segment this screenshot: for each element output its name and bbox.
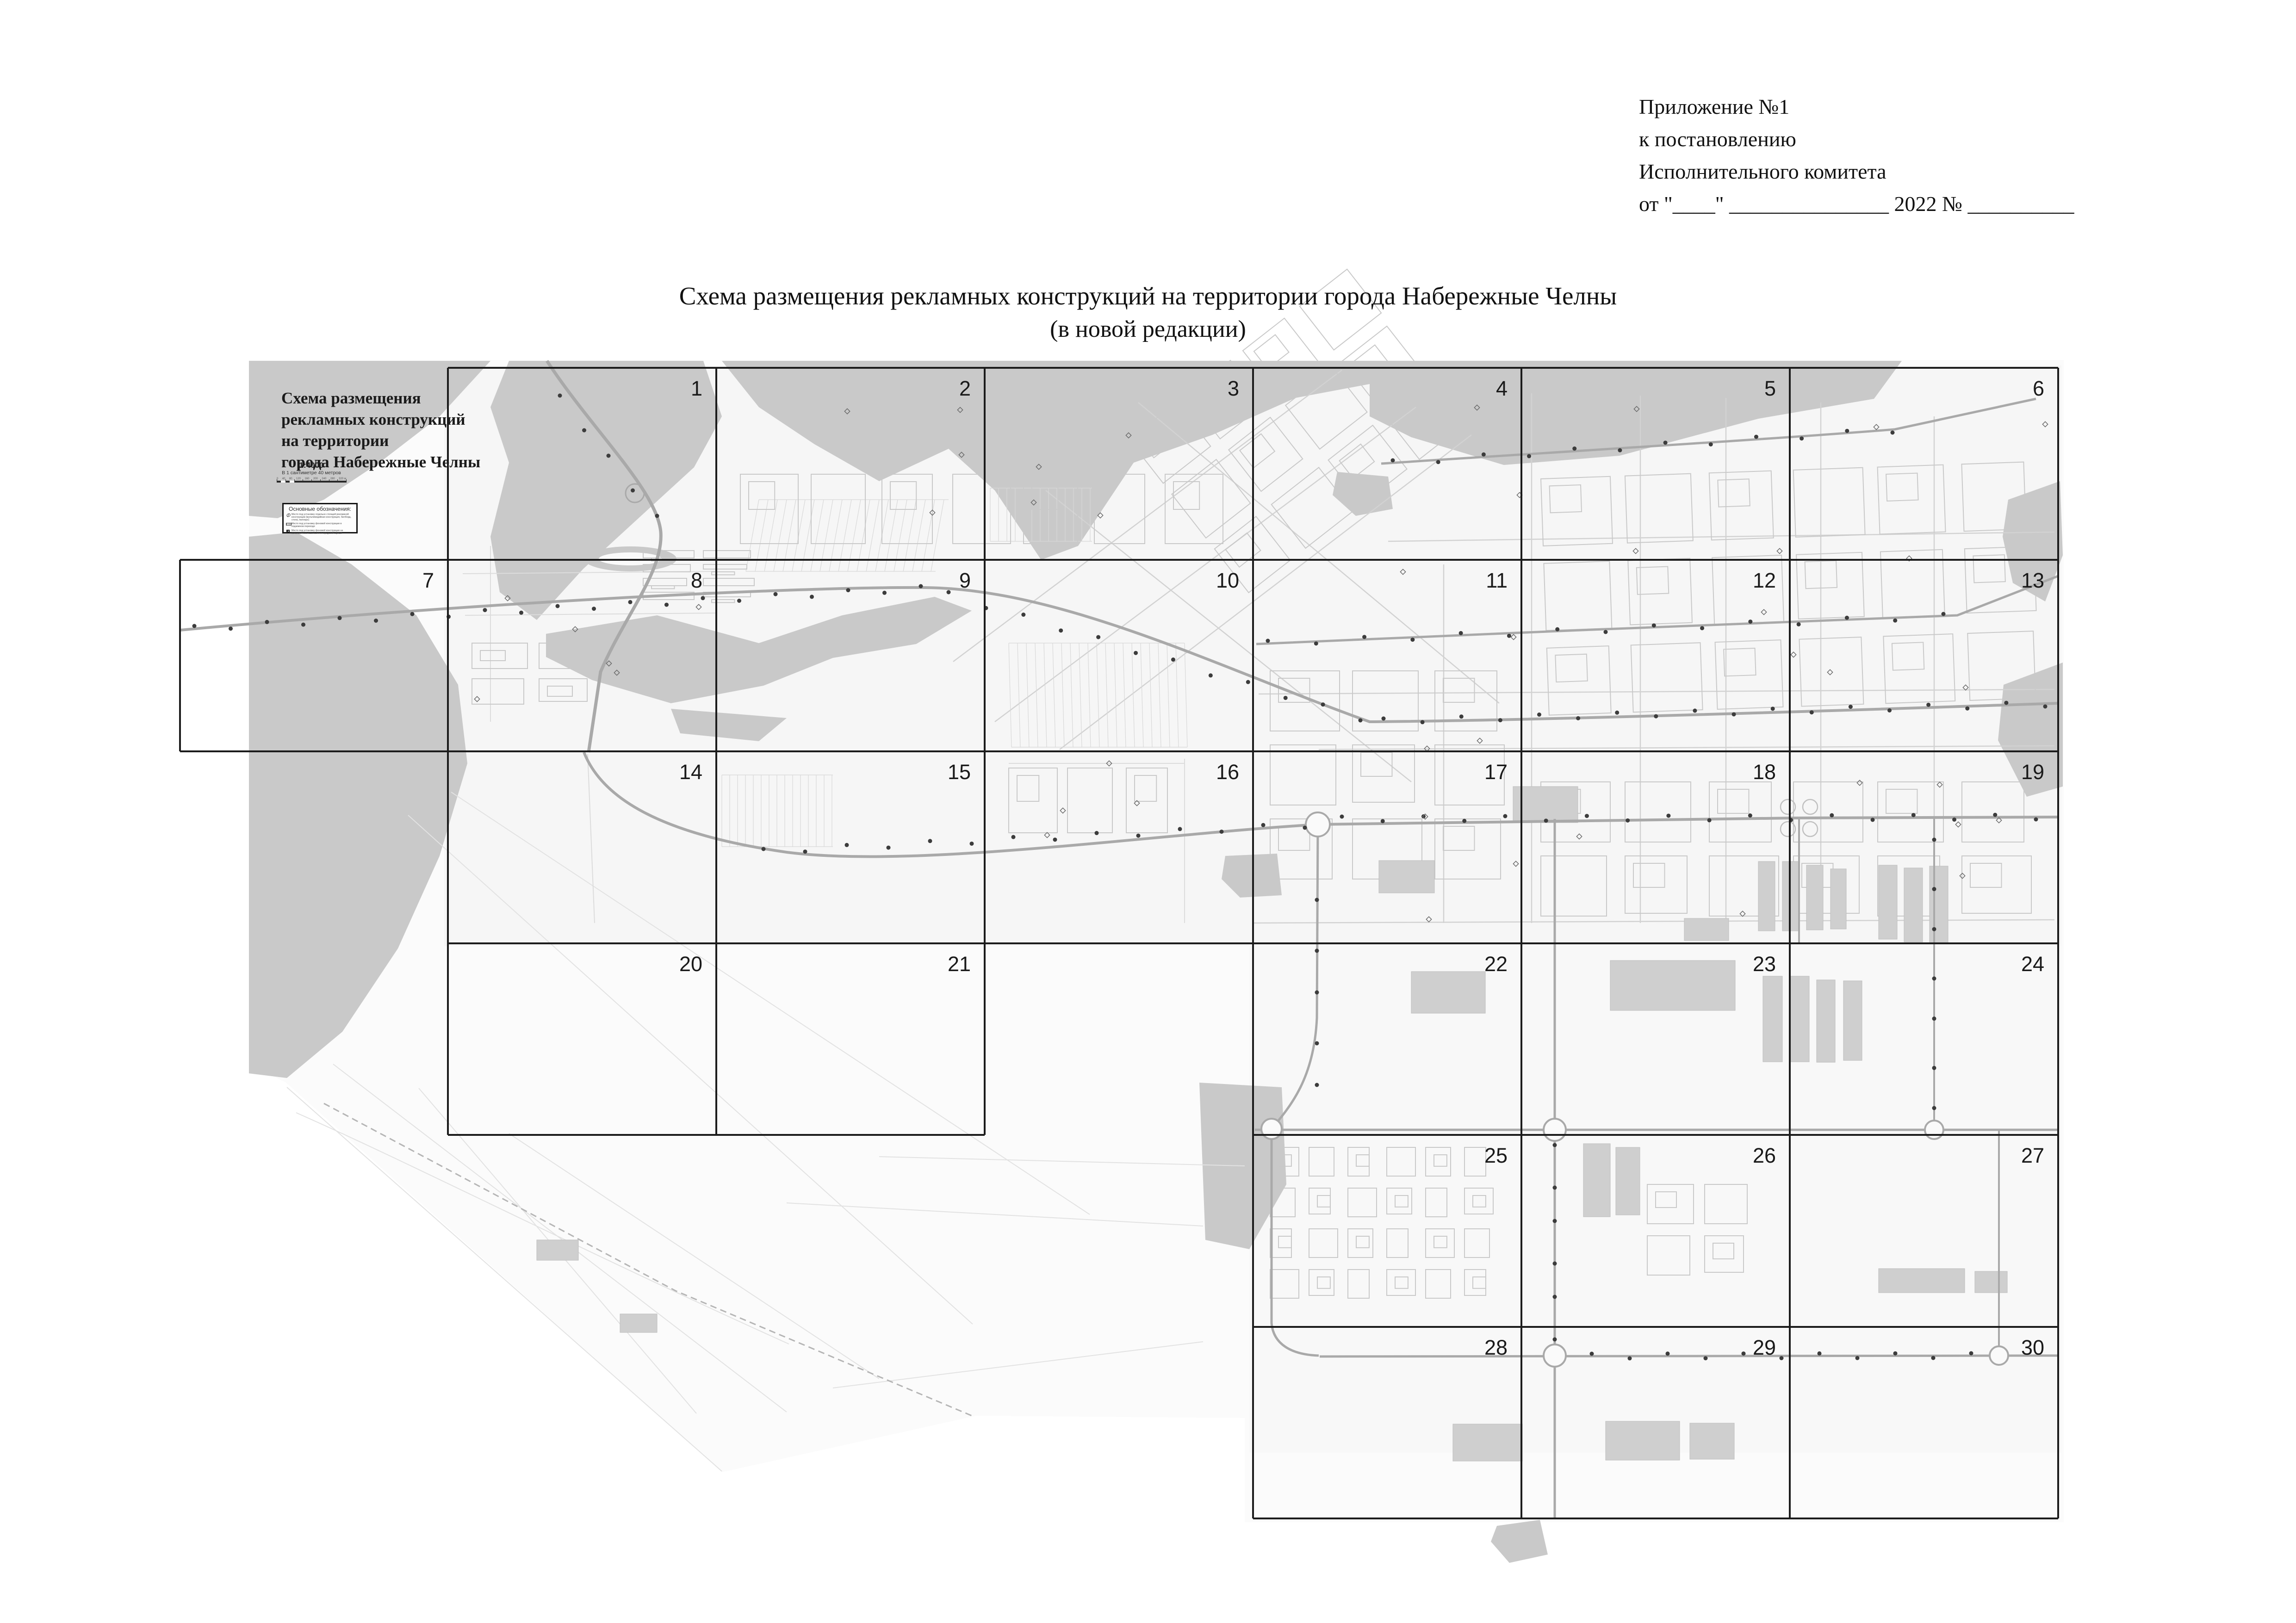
appendix-header: Приложение №1 к постановлению Исполнител…	[1639, 91, 2259, 220]
grid-cell-label: 5	[1764, 377, 1776, 400]
legend-item-label: Место под установку отдельно стоящей рек…	[292, 514, 354, 521]
scale-bar-tick-label: 80	[289, 477, 292, 480]
legend-item-label: Место под установку фоновой конструкции …	[292, 530, 354, 535]
freestanding-construction-icon	[286, 514, 292, 517]
city-map-canvas: 1234567891011121314151617181920212223242…	[0, 0, 2296, 1623]
legend-item: Место под установку отдельно стоящей рек…	[286, 514, 354, 521]
grid-cell-label: 24	[2021, 952, 2044, 976]
grid-cell-label: 8	[691, 569, 702, 592]
grid-cell-label: 11	[1486, 569, 1508, 592]
legend-heading: Основные обозначения:	[286, 506, 354, 512]
grid-cell-label: 13	[2021, 569, 2044, 592]
grid-cell-label: 23	[1753, 952, 1776, 976]
grid-cell-label: 2	[959, 377, 971, 400]
map-title-line: рекламных конструкций	[281, 409, 513, 430]
grid-cell-label: 9	[959, 569, 971, 592]
scale-bar-tick-label: 40	[282, 477, 285, 480]
scale-bar-tick-label: 240	[322, 477, 326, 480]
pavilion-construction-icon	[286, 530, 292, 533]
scale-bar-tick-label: 160	[304, 477, 309, 480]
underpass-construction-icon	[286, 523, 292, 526]
grid-cell-label: 25	[1484, 1144, 1508, 1167]
grid-cell-label: 3	[1228, 377, 1239, 400]
document-title: Схема размещения рекламных конструкций н…	[0, 281, 2296, 348]
scale-note: В 1 сантиметре 40 метров	[277, 470, 346, 476]
appendix-header-line: от "____" _______________ 2022 № _______…	[1639, 188, 2259, 220]
grid-cell-label: 14	[679, 760, 702, 784]
document-page: { "header": { "lines": [ "Приложение №1"…	[0, 0, 2296, 1623]
appendix-header-line: к постановлению	[1639, 123, 2259, 155]
map-title-line: на территории	[281, 430, 513, 452]
legend-item-label: Место под установку фоновой конструкции …	[292, 523, 354, 528]
grid-cell-label: 15	[948, 760, 971, 784]
scale-ratio: 1:4000	[277, 461, 346, 470]
document-title-line2: (в новой редакции)	[0, 311, 2296, 348]
grid-cell-label: 22	[1484, 952, 1508, 976]
document-title-line1: Схема размещения рекламных конструкций н…	[0, 281, 2296, 311]
grid-cell-label: 16	[1216, 760, 1239, 784]
map-scale-block: 1:4000 В 1 сантиметре 40 метров 04080120…	[277, 461, 346, 484]
grid-cell-label: 19	[2021, 760, 2044, 784]
grid-cell-label: 12	[1753, 569, 1776, 592]
map-sheet: 1234567891011121314151617181920212223242…	[0, 0, 2296, 1623]
grid-cell-label: 7	[422, 569, 434, 592]
grid-cell-label: 28	[1484, 1336, 1508, 1359]
scale-bar-tick-label: 200	[313, 477, 318, 480]
grid-cell-label: 10	[1216, 569, 1239, 592]
grid-cell-label: 4	[1496, 377, 1508, 400]
appendix-header-line: Приложение №1	[1639, 91, 2259, 123]
map-legend: Основные обозначения: Место под установк…	[282, 503, 358, 533]
grid-cell-label: 26	[1753, 1144, 1776, 1167]
grid-cell-label: 30	[2021, 1336, 2044, 1359]
grid-cell-label: 27	[2021, 1144, 2044, 1167]
scale-bar-tick-label: 120	[296, 477, 301, 480]
grid-cell-label: 17	[1484, 760, 1508, 784]
scale-bar: 04080120160200240280320 м	[277, 477, 346, 484]
legend-item: Место под установку фоновой конструкции …	[286, 530, 354, 535]
grid-cell-label: 18	[1753, 760, 1776, 784]
map-title-block: Схема размещения рекламных конструкций н…	[281, 388, 513, 473]
map-title-line: Схема размещения	[281, 388, 513, 409]
grid-cell-label: 1	[691, 377, 702, 400]
grid-cell-label: 20	[679, 952, 702, 976]
legend-item: Место под установку фоновой конструкции …	[286, 523, 354, 528]
grid-cell-label: 21	[948, 952, 971, 976]
grid-cell-label: 29	[1753, 1336, 1776, 1359]
scale-bar-tick-label: 320 м	[339, 477, 346, 480]
scale-bar-tick-label: 280	[330, 477, 335, 480]
grid-cell-label: 6	[2033, 377, 2044, 400]
appendix-header-line: Исполнительного комитета	[1639, 155, 2259, 188]
